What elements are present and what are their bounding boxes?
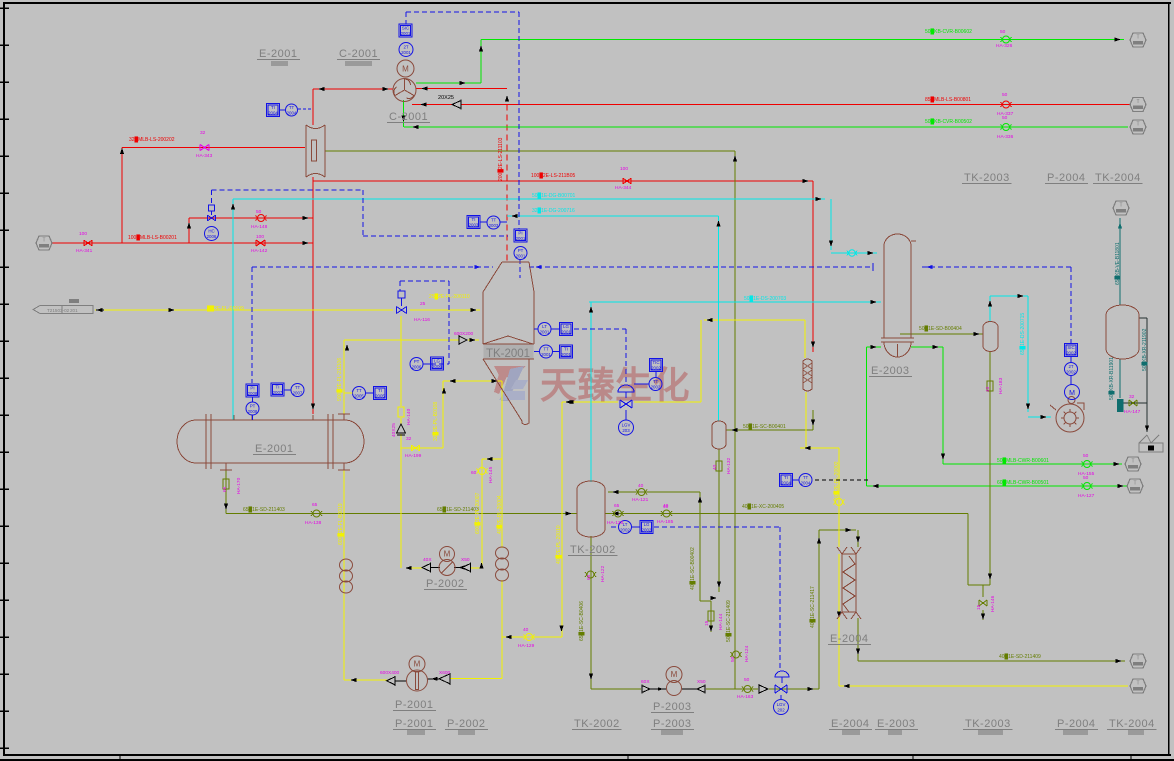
svg-text:HA-121: HA-121 (632, 497, 649, 503)
svg-text:40: 40 (712, 464, 718, 470)
svg-text:LG: LG (644, 522, 650, 527)
svg-text:60█MLB-CWR-B00501: 60█MLB-CWR-B00501 (997, 479, 1049, 486)
svg-text:SIC: SIC (1067, 345, 1074, 350)
svg-text:P-2003: P-2003 (653, 718, 691, 730)
svg-text:PT: PT (518, 248, 524, 253)
svg-text:TIC: TIC (652, 360, 659, 365)
svg-text:M: M (671, 670, 678, 679)
svg-text:40: 40 (663, 503, 669, 509)
svg-text:50█KB-XR-211902: 50█KB-XR-211902 (1141, 328, 1148, 371)
svg-text:LT: LT (623, 522, 628, 527)
svg-text:E-2003: E-2003 (877, 718, 915, 730)
svg-text:T: T (1133, 481, 1136, 487)
svg-text:M: M (414, 660, 421, 669)
svg-text:C-2001: C-2001 (339, 48, 378, 60)
svg-text:LG: LG (563, 324, 569, 329)
svg-text:PT: PT (414, 359, 420, 364)
svg-text:HA-336: HA-336 (997, 134, 1014, 140)
svg-text:600█2E-FL-B0019: 600█2E-FL-B0019 (337, 503, 344, 545)
svg-text:TI: TI (271, 105, 275, 110)
svg-text:TI: TI (472, 217, 476, 222)
svg-text:T: T (1136, 99, 1139, 105)
svg-text:600X400: 600X400 (380, 670, 400, 676)
svg-text:2001: 2001 (401, 31, 411, 36)
svg-text:HA-127: HA-127 (1078, 493, 1095, 499)
svg-text:2006: 2006 (412, 365, 422, 370)
svg-text:203: 203 (622, 428, 630, 433)
svg-text:HC: HC (208, 229, 214, 234)
svg-text:HA-132: HA-132 (726, 457, 732, 474)
svg-text:P-2002: P-2002 (426, 578, 464, 590)
svg-text:32: 32 (1129, 394, 1135, 400)
svg-text:65█KB-VE-B11801: 65█KB-VE-B11801 (1114, 242, 1121, 285)
svg-text:50: 50 (730, 656, 736, 662)
svg-text:PT: PT (250, 404, 256, 409)
svg-text:P-2004: P-2004 (1047, 172, 1085, 184)
svg-text:25█2E-FL-200110: 25█2E-FL-200110 (429, 293, 470, 300)
svg-text:TK-2003: TK-2003 (965, 718, 1011, 730)
svg-text:50█1E-DS-200703: 50█1E-DS-200703 (744, 295, 786, 302)
svg-text:50: 50 (1000, 29, 1006, 35)
svg-text:HA-146: HA-146 (990, 595, 996, 612)
svg-text:65: 65 (614, 503, 620, 509)
svg-text:40: 40 (985, 386, 991, 392)
svg-text:T: T (1119, 203, 1122, 209)
svg-text:50█1E-SD-B00404: 50█1E-SD-B00404 (919, 325, 962, 332)
svg-text:P-2001: P-2001 (395, 699, 433, 711)
svg-text:2004: 2004 (801, 481, 811, 486)
svg-text:40█1E-XC-200405: 40█1E-XC-200405 (742, 503, 784, 510)
svg-text:2002: 2002 (642, 528, 652, 533)
svg-text:2002: 2002 (651, 385, 661, 390)
svg-text:2T: 2T (1068, 364, 1073, 369)
svg-text:LG: LG (434, 359, 440, 364)
svg-text:2002: 2002 (620, 528, 630, 533)
svg-text:2001: 2001 (540, 330, 550, 335)
svg-text:40█2E-PL-20010: 40█2E-PL-20010 (555, 525, 562, 564)
svg-text:2005: 2005 (375, 394, 385, 399)
svg-text:SIC: SIC (402, 26, 409, 31)
svg-text:HA-147: HA-147 (1124, 409, 1141, 415)
svg-text:2001: 2001 (516, 254, 526, 259)
svg-text:TI: TI (564, 347, 568, 352)
svg-text:天臻生化: 天臻生化 (540, 365, 690, 406)
svg-text:LGV: LGV (777, 702, 786, 707)
svg-text:HA-148: HA-148 (251, 224, 268, 230)
svg-text:50: 50 (1083, 475, 1089, 481)
svg-text:T: T (1136, 122, 1139, 128)
svg-text:15: 15 (976, 604, 982, 610)
svg-text:TK-2001: TK-2001 (486, 348, 530, 360)
svg-text:2006: 2006 (432, 364, 442, 369)
svg-text:X50: X50 (461, 557, 470, 563)
svg-text:32█MLB-LS-200202: 32█MLB-LS-200202 (129, 136, 175, 143)
svg-text:2T: 2T (403, 45, 408, 50)
svg-text:██2E-FL-E0109: ██2E-FL-E0109 (207, 305, 244, 312)
svg-text:HA-344: HA-344 (615, 185, 632, 191)
svg-text:60X: 60X (641, 679, 650, 685)
svg-text:40X25: 40X25 (391, 423, 397, 437)
svg-text:32: 32 (406, 436, 412, 442)
svg-text:HA-170: HA-170 (236, 477, 242, 494)
svg-text:60: 60 (471, 470, 477, 476)
svg-text:P-2002: P-2002 (447, 718, 485, 730)
svg-text:TT: TT (491, 218, 497, 223)
svg-text:HA-183: HA-183 (998, 377, 1004, 394)
svg-text:HA-341: HA-341 (76, 248, 93, 254)
svg-text:50█1E-SC-B00401: 50█1E-SC-B00401 (743, 423, 786, 430)
svg-text:32: 32 (200, 130, 206, 136)
svg-text:32█1E-DG-200716: 32█1E-DG-200716 (532, 207, 575, 214)
svg-text:X50: X50 (697, 679, 706, 685)
svg-text:2002: 2002 (1066, 351, 1076, 356)
svg-text:50█MLB-CWR-B00601: 50█MLB-CWR-B00601 (997, 457, 1049, 464)
svg-text:HA-142: HA-142 (251, 248, 268, 254)
svg-text:E-2004: E-2004 (831, 718, 869, 730)
svg-text:T: T (1136, 656, 1139, 662)
svg-text:TK-2002: TK-2002 (574, 718, 620, 730)
svg-text:600█2E-PL-20007: 600█2E-PL-20007 (474, 492, 481, 534)
svg-text:HA-343: HA-343 (196, 153, 213, 159)
svg-text:TI: TI (378, 388, 382, 393)
svg-text:2006: 2006 (207, 234, 217, 239)
svg-text:50: 50 (1083, 453, 1089, 459)
svg-text:HA-185: HA-185 (657, 519, 674, 525)
svg-text:TT: TT (653, 379, 659, 384)
svg-text:2007: 2007 (293, 391, 303, 396)
svg-text:TT: TT (289, 105, 295, 110)
svg-text:40█1E-SC-211417: 40█1E-SC-211417 (809, 586, 816, 628)
svg-text:HA-144: HA-144 (718, 613, 724, 630)
svg-text:50█1E-DG-B00701: 50█1E-DG-B00701 (532, 192, 576, 199)
svg-text:M: M (1069, 390, 1075, 397)
svg-text:40█1E-SC-B00402: 40█1E-SC-B00402 (689, 547, 696, 590)
svg-text:2001: 2001 (541, 352, 551, 357)
svg-text:HA-163: HA-163 (737, 694, 754, 700)
svg-text:X600: X600 (439, 670, 451, 676)
svg-text:40█2E-PL-20002: 40█2E-PL-20002 (833, 461, 840, 500)
svg-text:HA-122: HA-122 (600, 565, 606, 582)
svg-text:2001: 2001 (561, 352, 571, 357)
svg-text:TI: TI (784, 475, 788, 480)
svg-text:2002: 2002 (651, 366, 661, 371)
svg-text:65█1E-SD-211403: 65█1E-SD-211403 (243, 506, 285, 513)
svg-text:15: 15 (704, 620, 710, 626)
svg-text:TK-2003: TK-2003 (964, 172, 1010, 184)
svg-text:TK-2002: TK-2002 (570, 544, 616, 556)
svg-text:P-2001: P-2001 (395, 718, 433, 730)
svg-text:T: T (1131, 459, 1134, 465)
svg-text:TK-2004: TK-2004 (1095, 172, 1141, 184)
svg-text:100: 100 (79, 231, 87, 237)
svg-text:M: M (402, 65, 409, 74)
svg-text:2004: 2004 (781, 481, 791, 486)
svg-text:PI: PI (518, 231, 522, 236)
svg-text:600X200: 600X200 (454, 331, 474, 337)
svg-text:HA-116: HA-116 (414, 317, 430, 323)
svg-text:201: 201 (70, 308, 78, 313)
svg-text:100█2E-LS-211B05: 100█2E-LS-211B05 (531, 172, 576, 179)
svg-text:T: T (1136, 35, 1139, 41)
svg-text:2007: 2007 (273, 390, 283, 395)
svg-text:C-2001: C-2001 (389, 111, 428, 123)
svg-text:PI: PI (250, 386, 254, 391)
svg-text:200█2E-LS-211103: 200█2E-LS-211103 (497, 137, 504, 181)
svg-text:65█1E-DS-200715: 65█1E-DS-200715 (1019, 313, 1026, 355)
svg-text:2001: 2001 (561, 330, 571, 335)
svg-text:50█KB-CVR-B00502: 50█KB-CVR-B00502 (925, 118, 972, 125)
svg-text:E-2003: E-2003 (871, 365, 909, 377)
svg-text:2002: 2002 (1066, 370, 1076, 375)
svg-text:50: 50 (1002, 92, 1008, 98)
svg-text:E-2001: E-2001 (259, 48, 297, 60)
svg-text:65: 65 (222, 486, 228, 492)
svg-text:TT: TT (356, 388, 362, 393)
svg-text:HA-129: HA-129 (518, 643, 535, 649)
svg-text:50: 50 (744, 677, 750, 683)
svg-text:20X25: 20X25 (438, 95, 454, 101)
svg-text:25: 25 (420, 301, 426, 307)
svg-text:HA-125: HA-125 (607, 520, 624, 526)
svg-text:50: 50 (1002, 115, 1008, 121)
svg-text:85█MLB-LS-B00801: 85█MLB-LS-B00801 (925, 96, 971, 103)
svg-text:50█KB-XR-B11901: 50█KB-XR-B11901 (1108, 357, 1115, 400)
svg-text:100: 100 (256, 234, 264, 240)
svg-text:2001: 2001 (401, 50, 411, 55)
svg-text:32█2E-PL-B0108: 32█2E-PL-B0108 (432, 402, 439, 441)
svg-text:202: 202 (777, 708, 785, 713)
svg-text:P-2003: P-2003 (653, 701, 691, 713)
svg-text:TI: TI (276, 385, 280, 390)
svg-text:HA-140: HA-140 (406, 408, 412, 425)
svg-text:50█KB-CVR-B00602: 50█KB-CVR-B00602 (925, 28, 972, 35)
svg-text:2005: 2005 (354, 394, 364, 399)
svg-text:HA-145: HA-145 (488, 466, 494, 483)
svg-text:HA-124: HA-124 (744, 645, 750, 662)
svg-text:40█1E-SD-211409: 40█1E-SD-211409 (999, 653, 1041, 660)
svg-text:HA-326: HA-326 (996, 43, 1013, 49)
svg-text:40█2E-PL-20004: 40█2E-PL-20004 (496, 495, 503, 534)
svg-text:TT: TT (543, 347, 549, 352)
svg-text:50: 50 (256, 209, 262, 215)
svg-text:T21503-02: T21503-02 (47, 308, 70, 313)
svg-text:65█1E-SC-B0406: 65█1E-SC-B0406 (578, 601, 585, 641)
svg-text:LGV: LGV (622, 423, 631, 428)
svg-text:HA-199: HA-199 (405, 453, 422, 459)
svg-text:LT: LT (542, 324, 547, 329)
svg-text:M: M (444, 550, 451, 559)
svg-text:50█1E-SC-211409: 50█1E-SC-211409 (725, 600, 732, 642)
svg-text:65: 65 (586, 574, 592, 580)
svg-text:T: T (1136, 681, 1139, 687)
svg-text:E-2001: E-2001 (255, 443, 293, 455)
svg-text:100: 100 (620, 166, 628, 172)
svg-text:65█1E-SD-211403: 65█1E-SD-211403 (437, 506, 479, 513)
svg-text:TK-2004: TK-2004 (1109, 718, 1155, 730)
svg-text:2003: 2003 (489, 223, 499, 228)
svg-text:E-2004: E-2004 (830, 633, 868, 645)
svg-text:TT: TT (295, 385, 301, 390)
svg-text:100█MLB-LS-B00201: 100█MLB-LS-B00201 (128, 234, 177, 241)
svg-text:40: 40 (638, 483, 644, 489)
svg-text:2003: 2003 (469, 223, 479, 228)
svg-text:2008: 2008 (248, 391, 258, 396)
svg-text:T: T (42, 238, 45, 244)
svg-text:900█2E-FL-211106: 900█2E-FL-211106 (336, 358, 343, 401)
svg-text:2008: 2008 (248, 409, 258, 414)
svg-text:TT: TT (803, 475, 809, 480)
svg-text:2001: 2001 (516, 236, 526, 241)
svg-text:2004: 2004 (268, 111, 278, 116)
svg-text:65: 65 (312, 502, 318, 508)
svg-text:2004: 2004 (287, 111, 297, 116)
svg-text:P-2004: P-2004 (1057, 718, 1095, 730)
svg-text:40: 40 (523, 627, 529, 633)
svg-text:HA-138: HA-138 (305, 520, 322, 526)
svg-text:40X: 40X (423, 557, 432, 563)
